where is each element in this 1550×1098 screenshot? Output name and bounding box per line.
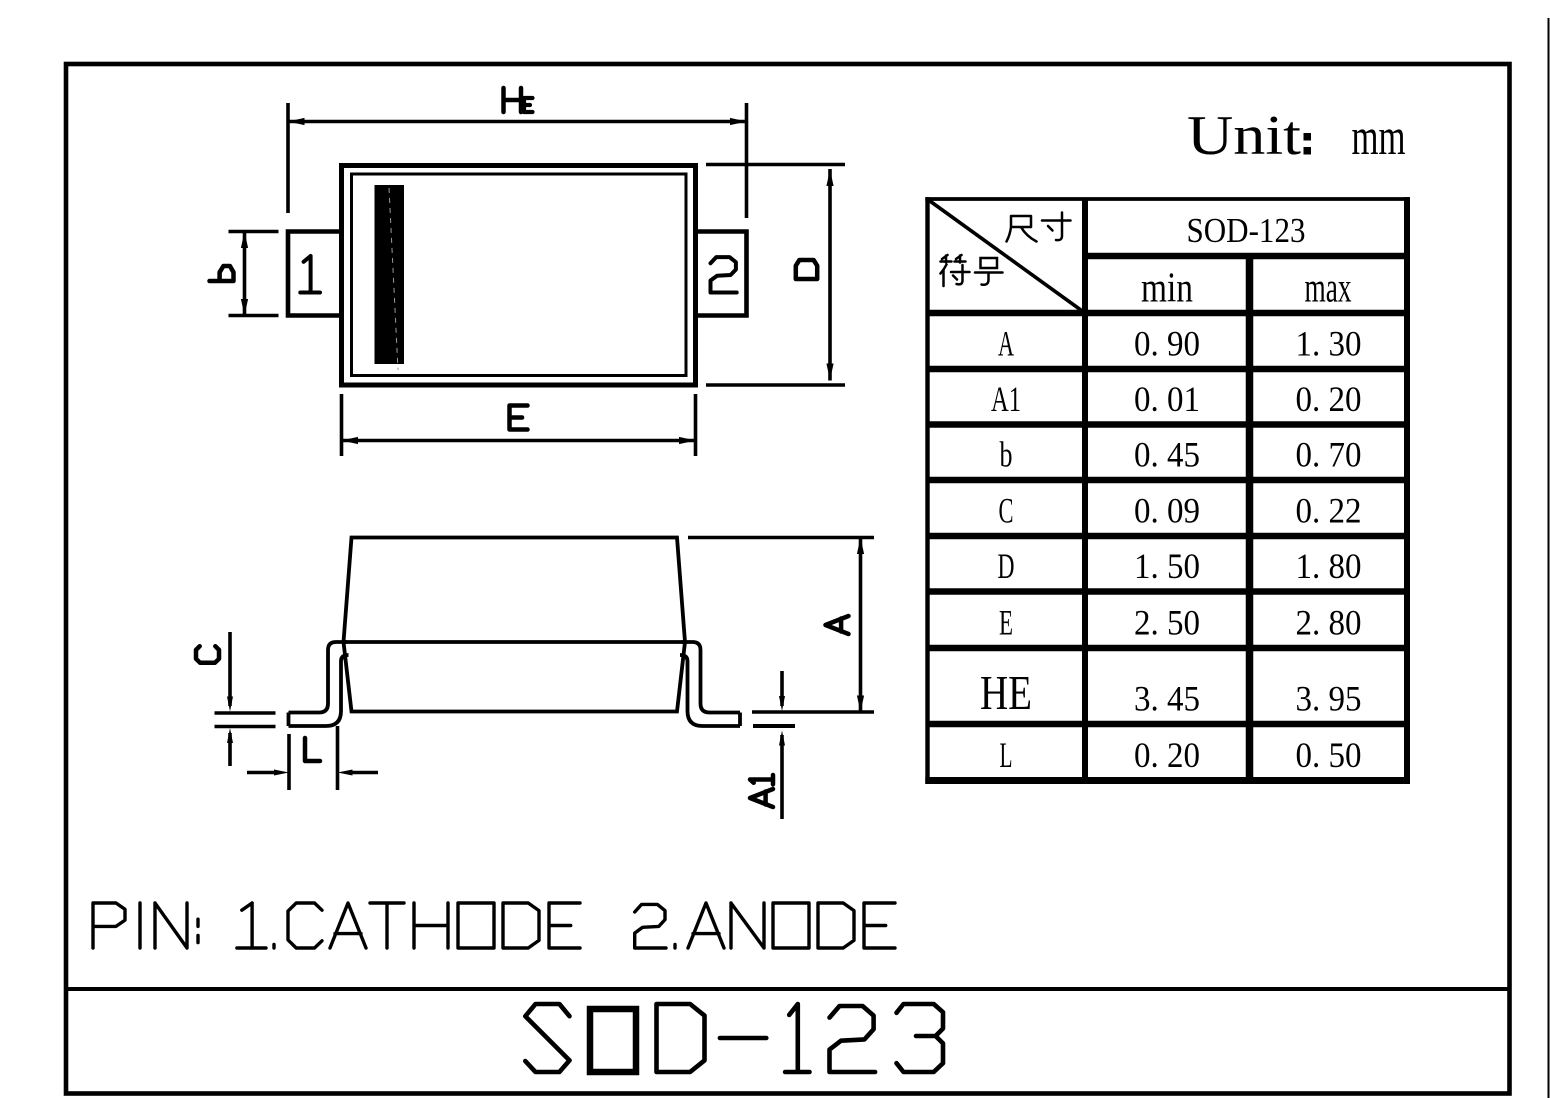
svg-text:A: A [998,324,1014,364]
svg-text:0. 70: 0. 70 [1296,435,1362,475]
svg-text:0. 20: 0. 20 [1134,735,1200,775]
svg-text:0. 20: 0. 20 [1296,379,1362,419]
svg-text:2. 50: 2. 50 [1134,603,1200,643]
svg-text:1. 30: 1. 30 [1296,324,1362,364]
svg-text:3. 95: 3. 95 [1296,679,1362,719]
svg-text:0. 01: 0. 01 [1134,379,1200,419]
svg-text:HE: HE [980,665,1032,720]
svg-text:E: E [999,603,1013,643]
svg-text:1. 80: 1. 80 [1296,546,1362,586]
svg-text:mm: mm [1352,109,1406,166]
svg-text:0. 90: 0. 90 [1134,324,1200,364]
svg-text:0. 50: 0. 50 [1296,735,1362,775]
svg-text:A1: A1 [991,379,1021,419]
svg-text:0. 09: 0. 09 [1134,491,1200,531]
svg-text:0. 45: 0. 45 [1134,435,1200,475]
svg-text:2. 80: 2. 80 [1296,603,1362,643]
svg-text:C: C [999,491,1014,531]
svg-text:min: min [1141,266,1193,312]
svg-text:SOD-123: SOD-123 [1187,211,1306,250]
svg-text:D: D [998,546,1015,586]
svg-text:max: max [1305,266,1352,312]
svg-text:0. 22: 0. 22 [1296,491,1362,531]
svg-text:b: b [1000,435,1013,475]
svg-text:Unit: Unit [1187,105,1302,167]
svg-text:L: L [1000,735,1013,775]
svg-text:1. 50: 1. 50 [1134,546,1200,586]
svg-text:3. 45: 3. 45 [1134,679,1200,719]
